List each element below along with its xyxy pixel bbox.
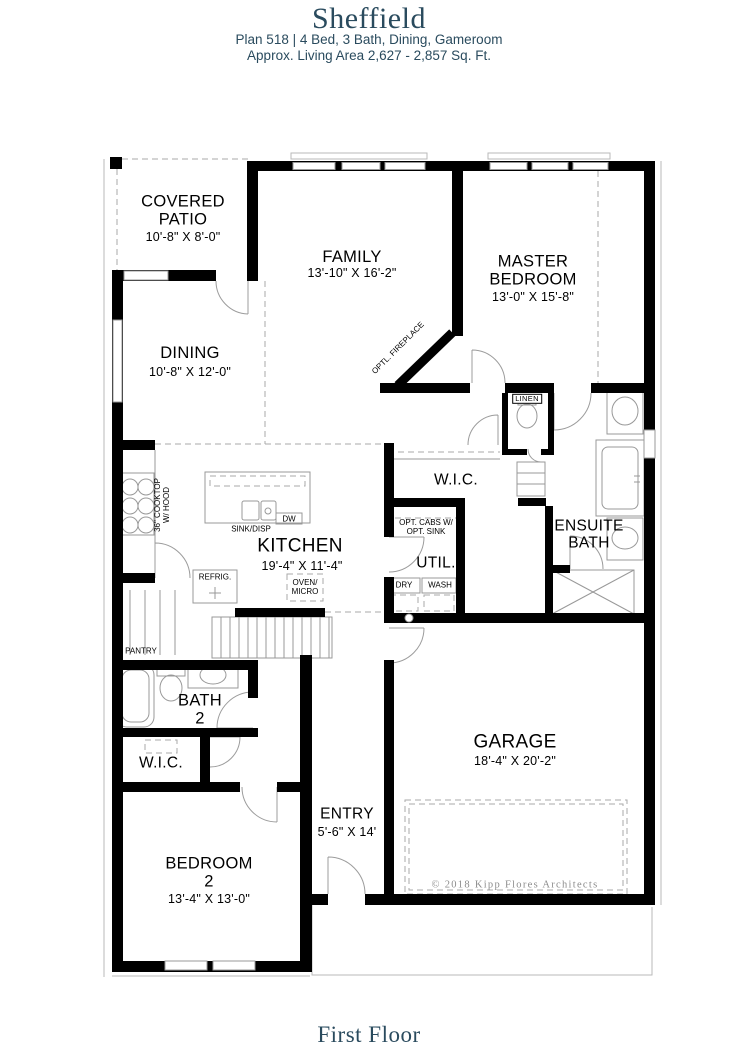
- room-dims-family: 13'-10" X 16'-2": [307, 266, 396, 280]
- room-dims-dining: 10'-8" X 12'-0": [149, 365, 231, 379]
- room-label-ensuite-bath: ENSUITE BATH: [554, 518, 623, 553]
- cooktop-label: 36" COOKTOP W/ HOOD: [153, 478, 171, 532]
- room-label-wic2: W.I.C.: [139, 754, 183, 771]
- room-label-family: FAMILY: [322, 248, 381, 266]
- pantry-label: PANTRY: [125, 646, 157, 655]
- linen-closet-label: LINEN: [512, 394, 542, 404]
- room-label-bedroom2: BEDROOM 2: [165, 855, 252, 892]
- sink-disposal-label: SINK/DISP: [231, 524, 271, 533]
- room-label-dining: DINING: [160, 344, 220, 362]
- refrigerator-label: REFRIG.: [199, 572, 231, 581]
- room-label-util: UTIL.: [416, 554, 455, 571]
- room-dims-garage: 18'-4" X 20'-2": [474, 754, 556, 768]
- dryer-label: DRY: [396, 580, 413, 589]
- oven-micro-label: OVEN/ MICRO: [292, 578, 319, 596]
- room-label-covered-patio: COVERED PATIO: [141, 193, 225, 230]
- fixture-lines: [117, 390, 644, 727]
- room-dims-entry: 5'-6" X 14': [318, 825, 377, 839]
- room-dims-bedroom2: 13'-4" X 13'-0": [168, 892, 250, 906]
- room-dims-kitchen: 19'-4" X 11'-4": [261, 559, 342, 573]
- room-dims-master-bedroom: 13'-0" X 15'-8": [492, 290, 574, 304]
- washer-label: WASH: [428, 580, 452, 589]
- room-dims-covered-patio: 10'-8" X 8'-0": [146, 230, 221, 244]
- copyright-notice: © 2018 Kipp Flores Architects: [432, 880, 599, 891]
- optional-cabinets-label: OPT. CABS W/ OPT. SINK: [399, 518, 453, 536]
- room-label-garage: GARAGE: [473, 731, 556, 752]
- dishwasher-label: DW: [282, 514, 295, 523]
- room-label-entry: ENTRY: [320, 805, 374, 822]
- room-label-bath2: BATH 2: [178, 692, 222, 729]
- room-label-master-bedroom: MASTER BEDROOM: [489, 253, 576, 290]
- floor-plan-page: Sheffield Plan 518 | 4 Bed, 3 Bath, Dini…: [0, 0, 738, 1058]
- floorplan-linework: [0, 0, 738, 1058]
- room-label-master-wic: W.I.C.: [434, 471, 478, 488]
- room-label-kitchen: KITCHEN: [257, 535, 343, 556]
- floor-label: First Floor: [317, 1022, 420, 1048]
